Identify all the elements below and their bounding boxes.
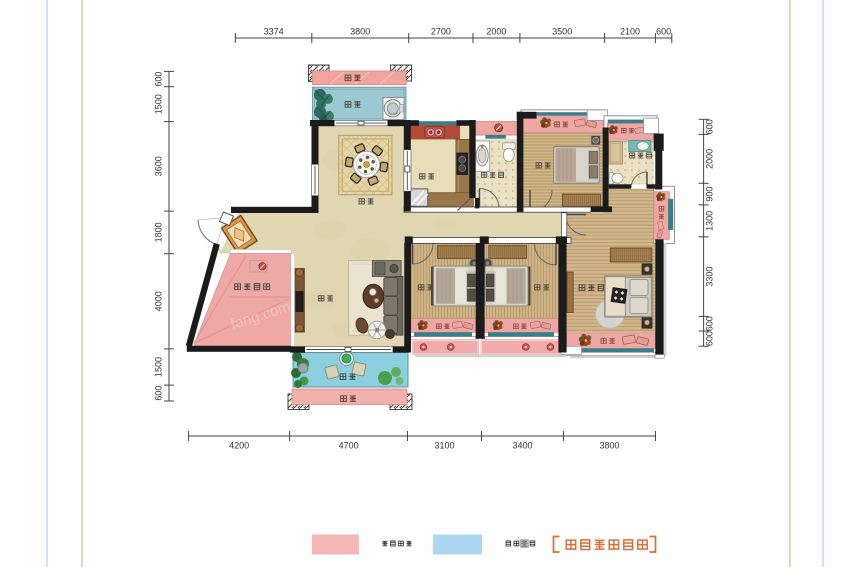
svg-text:600: 600 <box>705 316 715 331</box>
svg-text:1300: 1300 <box>705 211 715 231</box>
svg-text:2100: 2100 <box>620 27 640 37</box>
svg-text:4700: 4700 <box>339 441 359 451</box>
svg-text:2000: 2000 <box>705 149 715 169</box>
svg-text:3374: 3374 <box>264 27 284 37</box>
svg-text:4200: 4200 <box>229 441 249 451</box>
svg-text:1500: 1500 <box>154 94 164 114</box>
svg-text:3100: 3100 <box>434 441 454 451</box>
svg-text:3800: 3800 <box>599 441 619 451</box>
svg-text:600: 600 <box>705 119 715 134</box>
svg-text:600: 600 <box>154 72 164 87</box>
svg-text:3600: 3600 <box>154 156 164 176</box>
svg-text:600: 600 <box>656 27 671 37</box>
svg-text:600: 600 <box>705 331 715 346</box>
svg-text:4000: 4000 <box>154 291 164 311</box>
svg-text:3500: 3500 <box>552 27 572 37</box>
svg-text:2700: 2700 <box>431 27 451 37</box>
svg-text:600: 600 <box>154 386 164 401</box>
svg-text:1500: 1500 <box>154 357 164 377</box>
svg-text:3400: 3400 <box>512 441 532 451</box>
svg-text:3300: 3300 <box>705 267 715 287</box>
svg-text:1800: 1800 <box>154 222 164 242</box>
svg-text:3800: 3800 <box>350 27 370 37</box>
svg-text:900: 900 <box>705 187 715 202</box>
svg-text:2000: 2000 <box>486 27 506 37</box>
